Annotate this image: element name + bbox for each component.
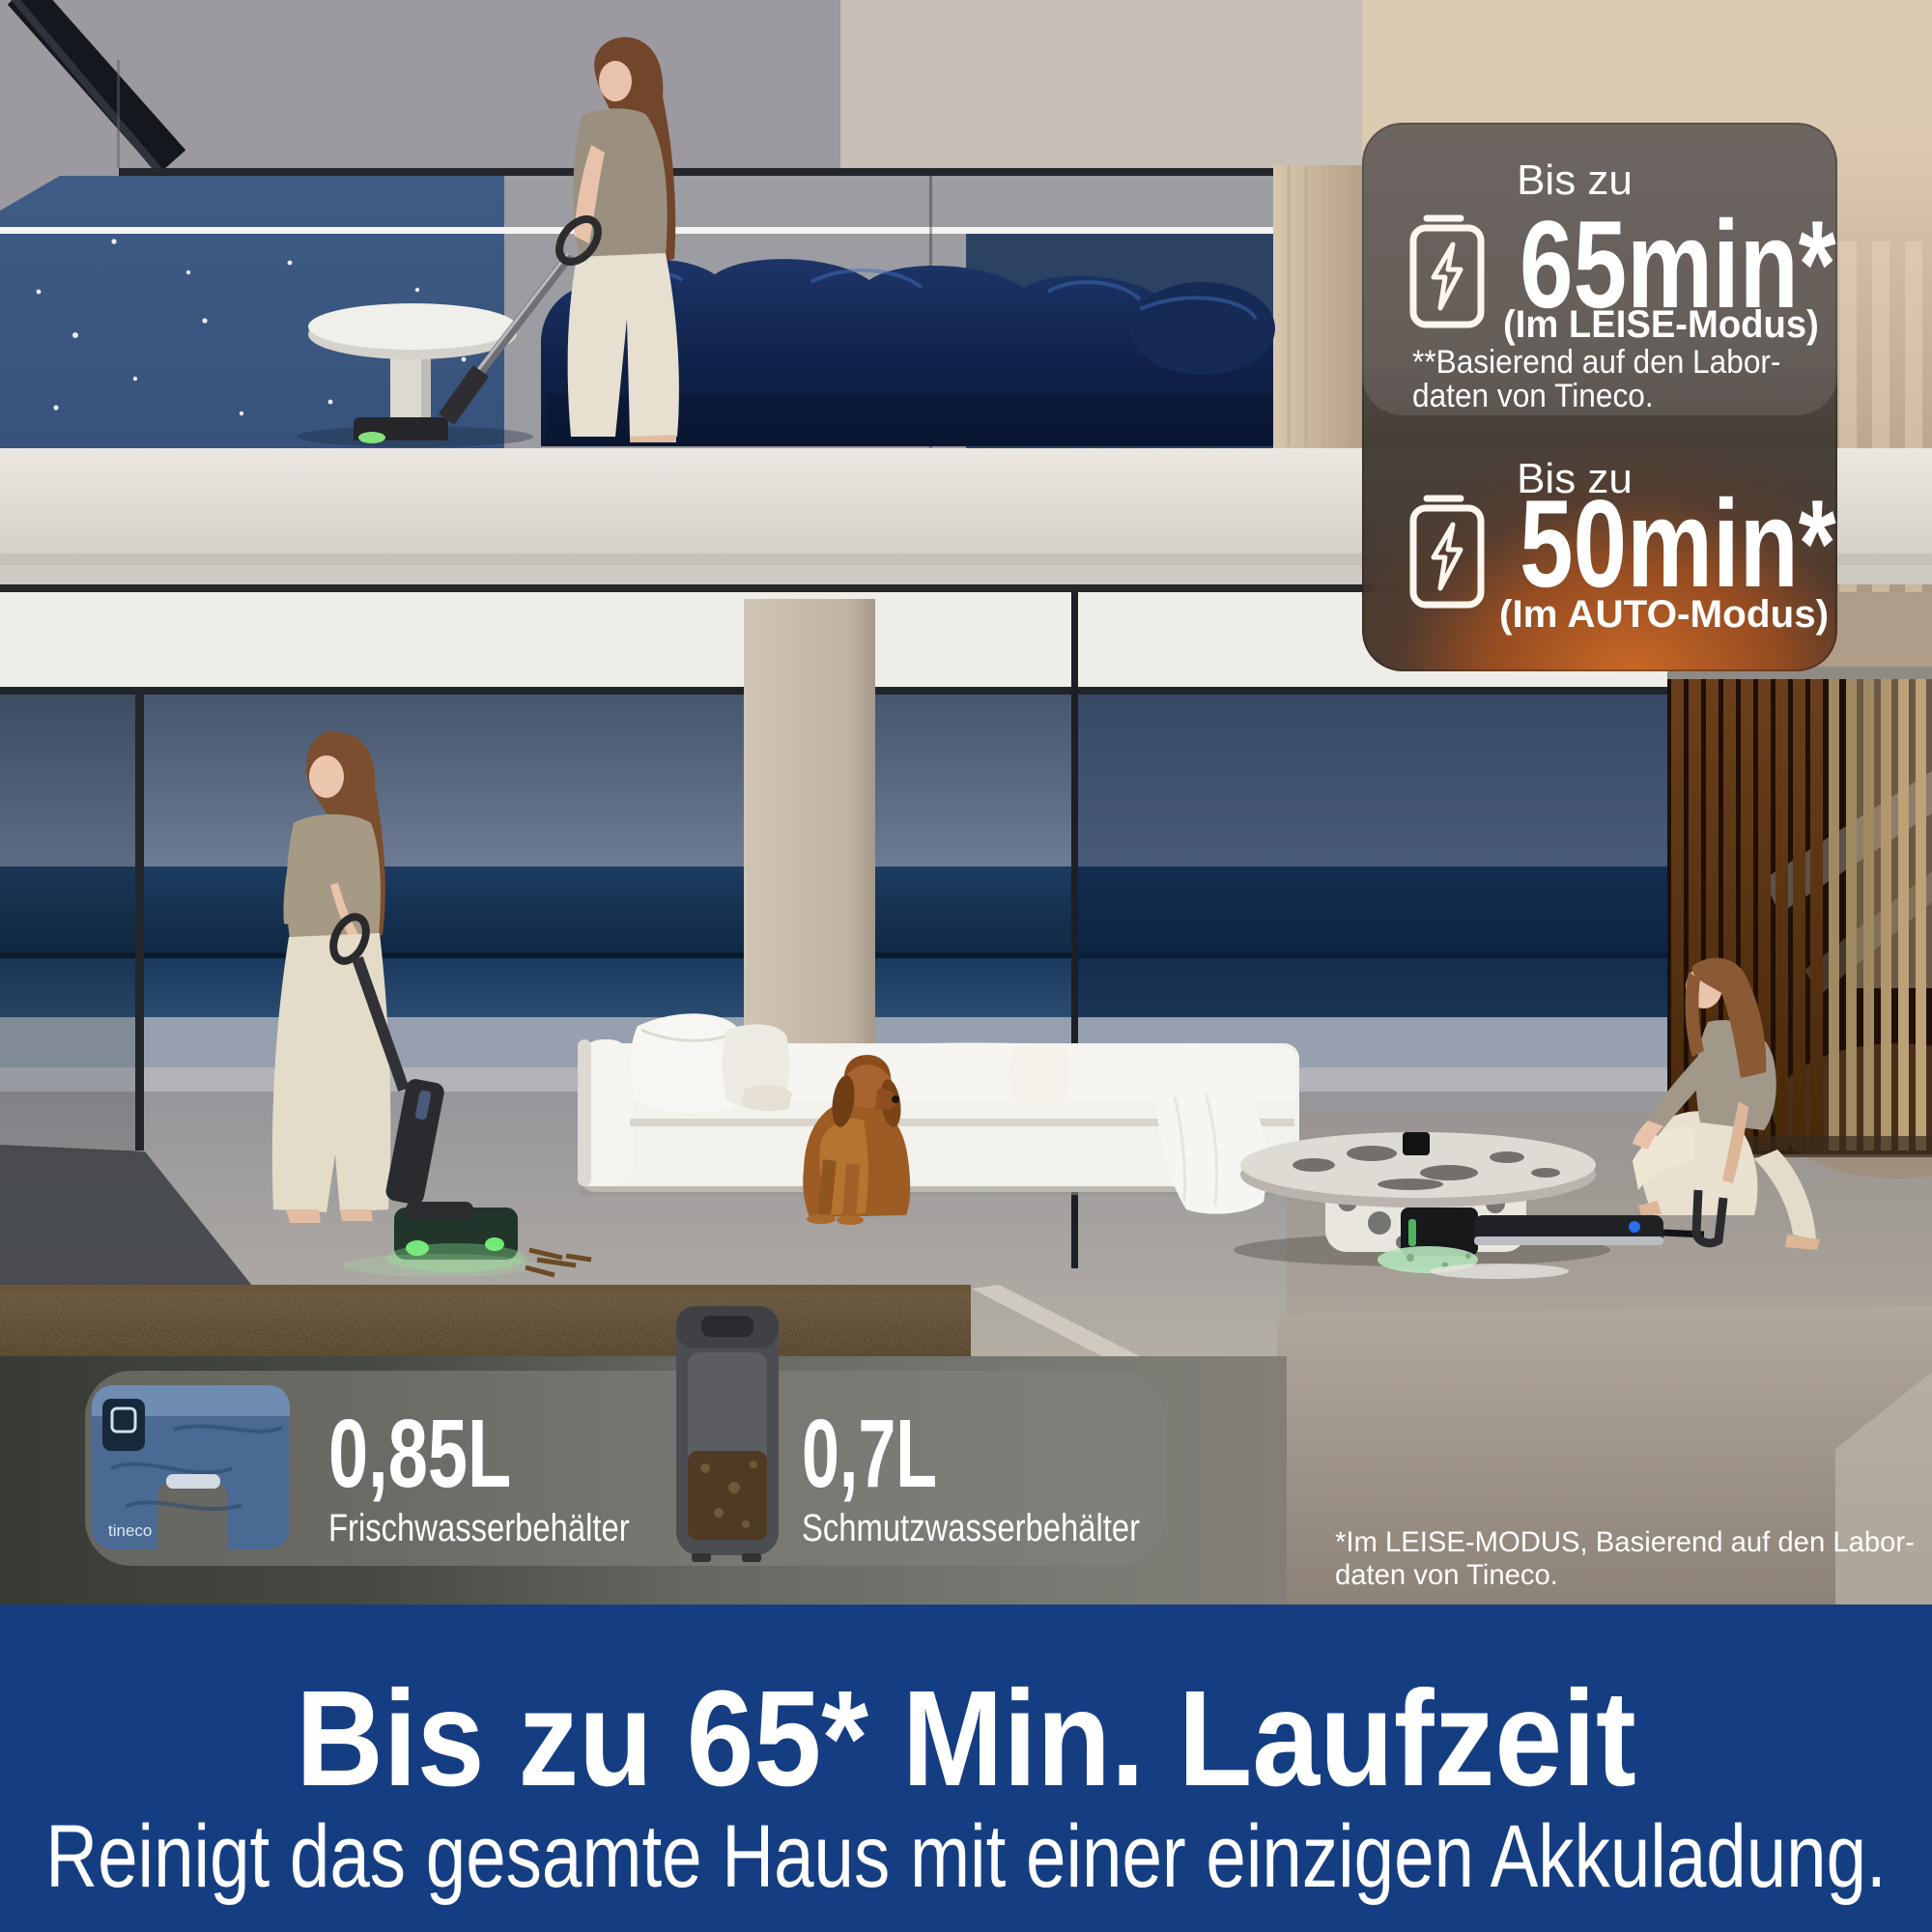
svg-text:tineco: tineco: [108, 1521, 152, 1540]
